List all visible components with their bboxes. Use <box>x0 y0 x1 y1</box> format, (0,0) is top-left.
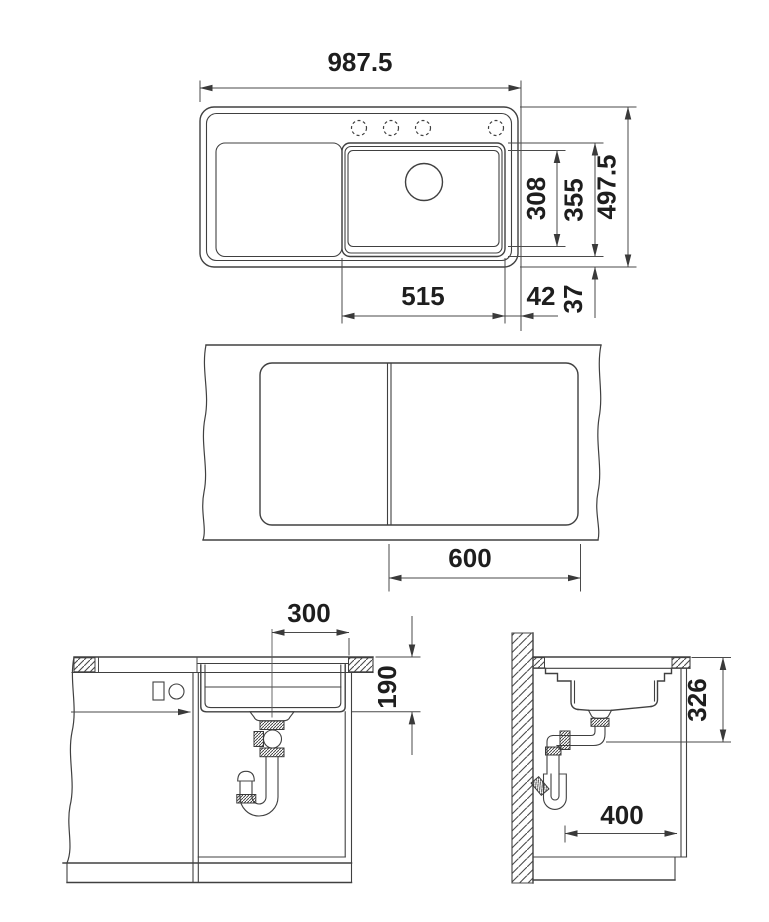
dim-label-overall-depth: 497.5 <box>592 154 622 219</box>
dim-cabinet-width: 600 <box>389 543 581 592</box>
dim-bowl-position: 515 42 <box>342 258 558 324</box>
coupling-nut <box>591 718 609 726</box>
tap-hole-icon <box>416 121 431 136</box>
drain-flange <box>589 710 612 718</box>
dim-label-drain-distance: 400 <box>600 800 643 830</box>
drain-trap-front <box>237 712 294 816</box>
bowl-inner-edge <box>348 151 499 247</box>
front-section-view: 300 190 <box>63 598 421 883</box>
installed-sink-outline <box>260 363 578 525</box>
dim-label-clearance: 326 <box>682 678 712 721</box>
sink-plan-view: 987.5 308 355 497.5 37 515 <box>200 47 637 331</box>
dim-label-bowl-width: 515 <box>401 281 444 311</box>
p-trap-inner <box>551 774 559 800</box>
sink-outer-edge <box>200 107 518 267</box>
counter-section-hatch <box>74 658 95 672</box>
sink-dimension-drawing: 987.5 308 355 497.5 37 515 <box>0 0 769 922</box>
counter-section-hatch <box>349 658 374 672</box>
coupling-nut <box>260 748 284 757</box>
bowl-profile-left <box>546 668 579 709</box>
side-section-view: 326 400 <box>512 633 731 883</box>
drain-trap-side <box>531 710 611 809</box>
break-line-right <box>597 345 601 540</box>
coupling-nut <box>237 795 256 804</box>
dim-overall-width: 987.5 <box>200 47 521 331</box>
dim-label-cabinet-width: 600 <box>448 543 491 573</box>
coupling-nut <box>260 721 284 730</box>
tap-hole-icon <box>384 121 399 136</box>
break-line-left <box>203 345 207 540</box>
bowl-outer-rim <box>342 143 505 257</box>
inlet-coupling <box>254 732 264 747</box>
dim-label-bowl-front-gap: 37 <box>558 285 588 314</box>
trap-outlet-cap <box>238 771 255 781</box>
coupling-nut <box>546 747 562 755</box>
wall-outlet-coupling <box>531 777 549 796</box>
worktop-plan-view: 600 <box>203 345 601 592</box>
tap-hole-icon <box>489 121 504 136</box>
drainboard <box>216 143 342 257</box>
dim-label-overall-width: 987.5 <box>327 47 392 77</box>
dim-drain-offset: 300 <box>272 598 349 656</box>
socket-outlet-icon <box>169 684 184 699</box>
counter-section-hatch <box>533 658 545 668</box>
dim-label-bowl-side-gap: 42 <box>527 281 556 311</box>
p-trap-outer <box>544 774 567 809</box>
dim-label-bowl-inner-depth: 308 <box>521 177 551 220</box>
break-line-left <box>67 657 74 863</box>
dim-label-bowl-outer-depth: 355 <box>559 178 589 221</box>
bowl-mid-rim <box>345 147 502 254</box>
dim-drain-distance: 400 <box>565 800 677 843</box>
bowl-inner-wall <box>205 665 341 708</box>
dim-label-bowl-depth: 190 <box>372 665 402 708</box>
socket-outlet-icon <box>153 682 164 700</box>
tap-hole-icon <box>352 121 367 136</box>
drain-hole-icon <box>406 164 443 201</box>
trap-elbow <box>264 730 282 748</box>
wall-section-hatch <box>512 633 533 883</box>
p-trap-outer <box>240 757 278 816</box>
counter-section-hatch <box>672 658 690 668</box>
dim-bowl-depth: 190 <box>352 616 421 755</box>
technical-drawing-page: 987.5 308 355 497.5 37 515 <box>0 0 769 922</box>
dim-clearance: 326 <box>606 658 731 743</box>
dim-label-drain-offset: 300 <box>287 598 330 628</box>
